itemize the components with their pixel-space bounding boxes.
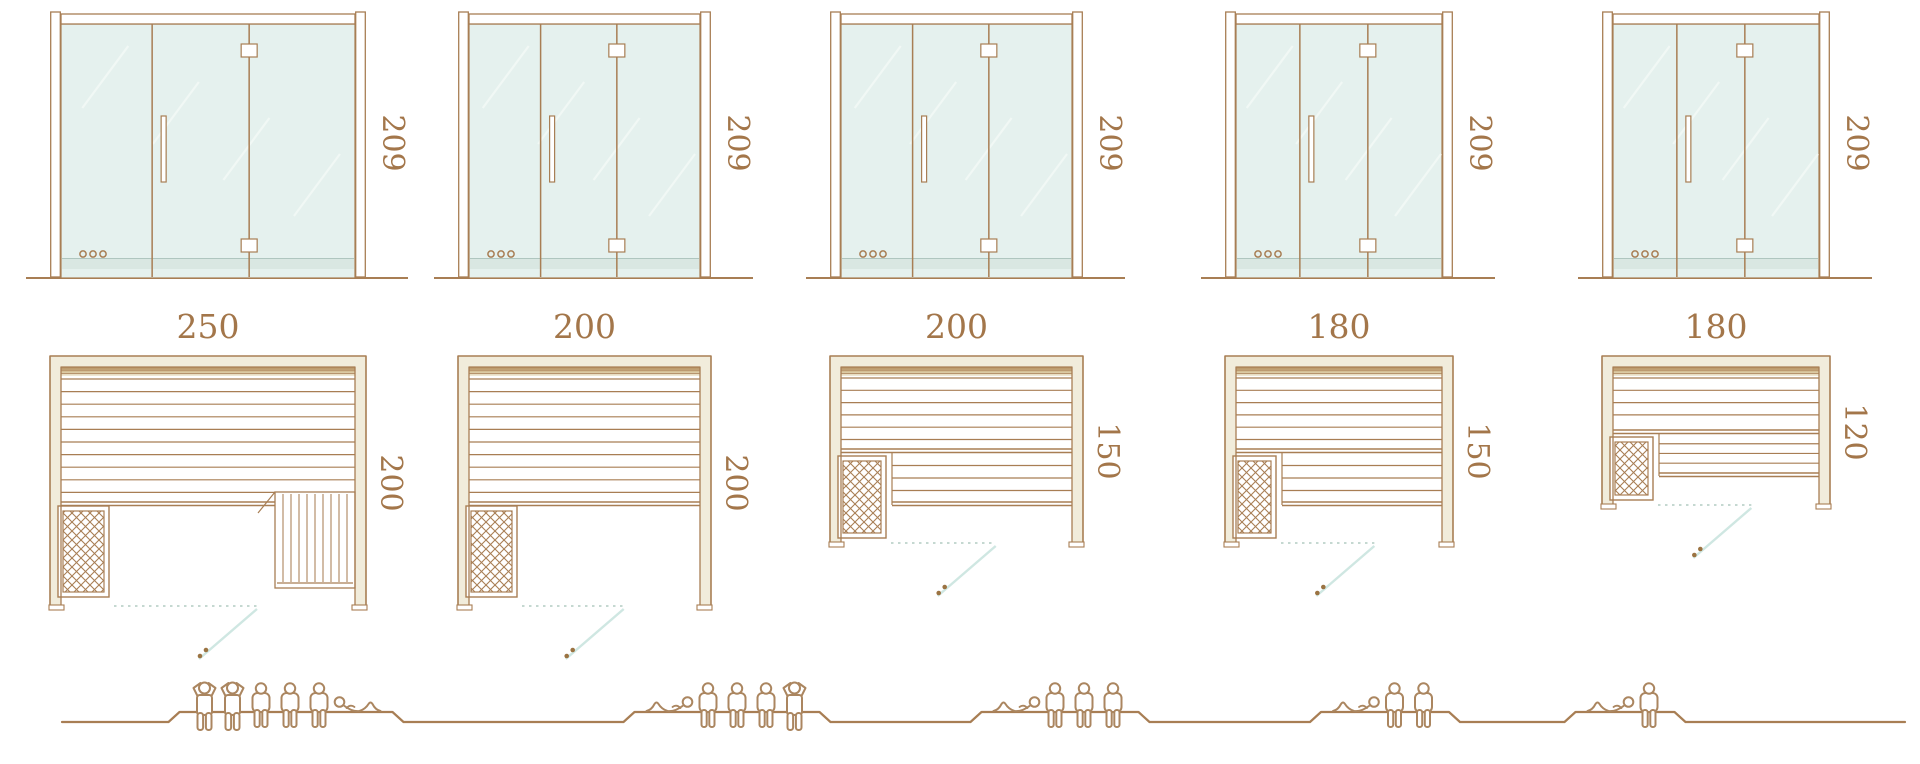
plan-width-dimension-4: 180 [1225,310,1453,344]
plan-width-dimension-5: 180 [1602,310,1830,344]
diagram-linework [0,0,1920,764]
plan-width-dimension-1: 250 [50,310,366,344]
plan-depth-dimension-3: 150 [1090,421,1124,481]
door-height-dimension-5: 209 [1839,113,1873,173]
door-height-dimension-3: 209 [1092,113,1126,173]
plan-width-dimension-2: 200 [458,310,711,344]
plan-depth-dimension-4: 150 [1460,421,1494,481]
plan-depth-dimension-5: 120 [1837,402,1871,462]
door-height-dimension-2: 209 [720,113,754,173]
door-height-dimension-1: 209 [375,113,409,173]
plan-depth-dimension-1: 200 [373,453,407,513]
plan-depth-dimension-2: 200 [718,453,752,513]
door-height-dimension-4: 209 [1462,113,1496,173]
plan-width-dimension-3: 200 [830,310,1083,344]
sauna-size-comparison-diagram: 209 209 209 209 209 250 200 200 180 180 … [0,0,1920,764]
